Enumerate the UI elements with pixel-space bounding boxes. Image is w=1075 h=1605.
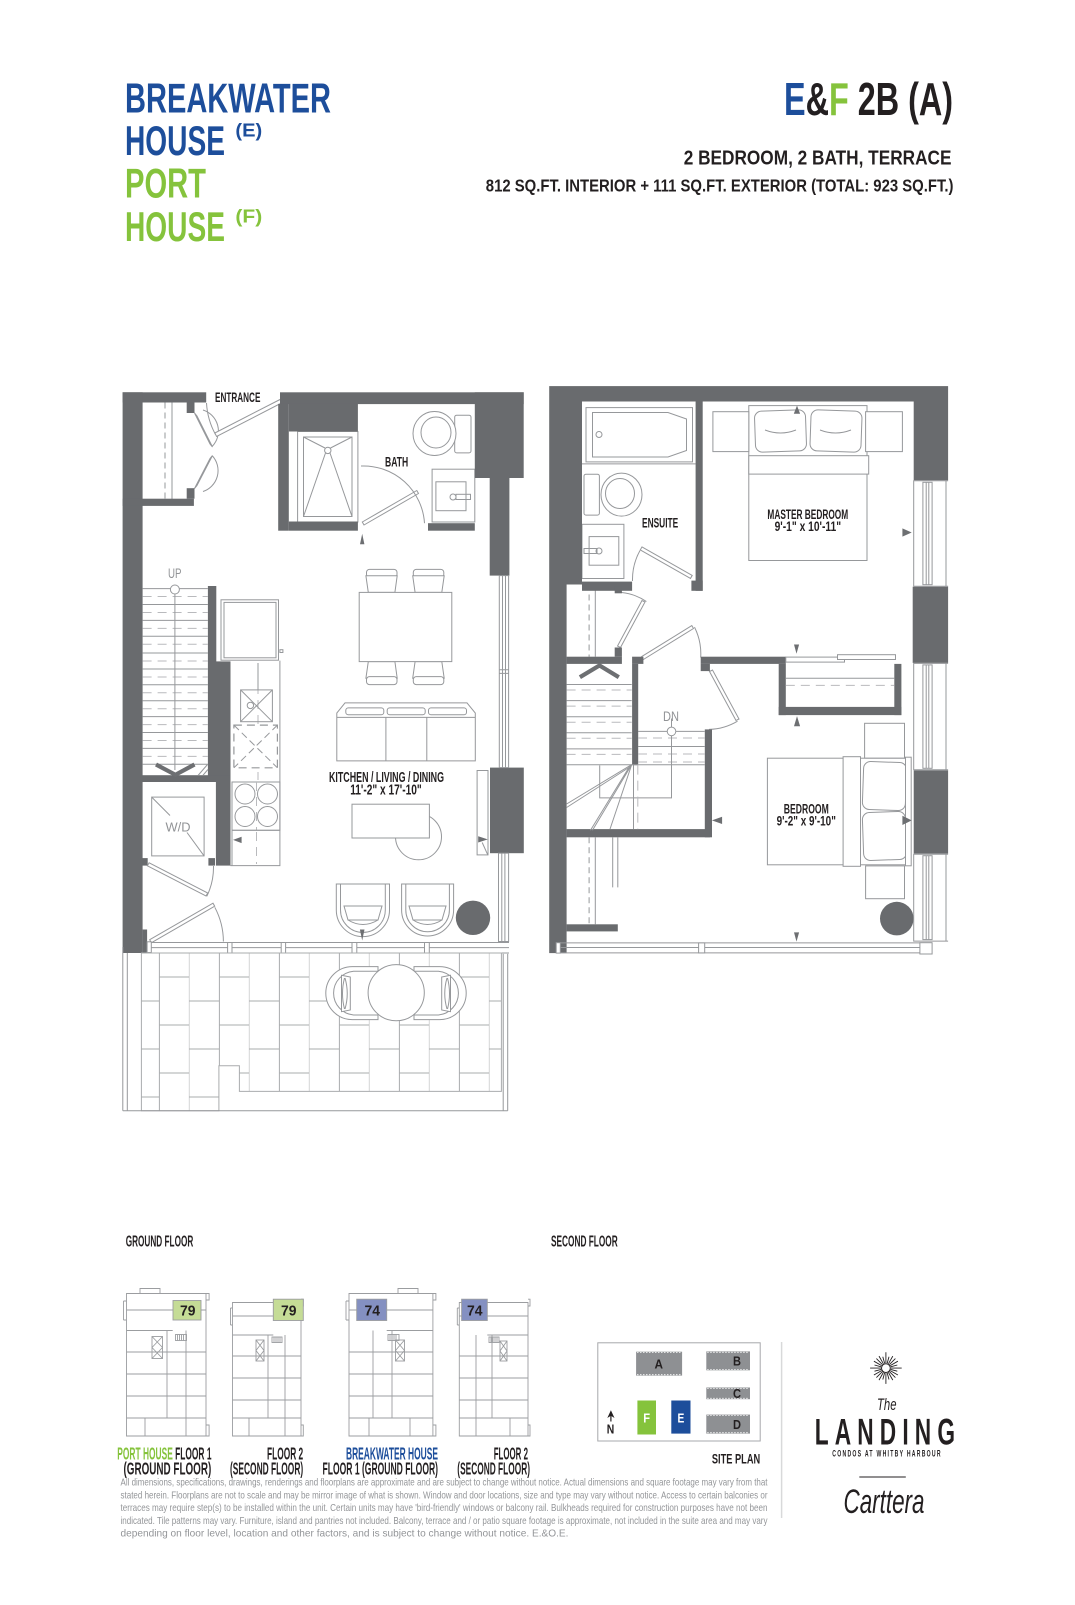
svg-text:SITE PLAN: SITE PLAN	[712, 1450, 760, 1466]
svg-text:DN: DN	[663, 709, 679, 724]
svg-text:79: 79	[180, 1304, 196, 1320]
svg-text:HOUSE: HOUSE	[125, 117, 225, 164]
svg-text:terraces may require step(s) t: terraces may require step(s) to be insta…	[121, 1502, 768, 1514]
svg-text:(E): (E)	[235, 121, 262, 141]
svg-text:indicated. Tile patterns may v: indicated. Tile patterns may vary. Furni…	[121, 1515, 769, 1527]
svg-text:Carttera: Carttera	[844, 1483, 925, 1521]
svg-text:PORT: PORT	[125, 160, 206, 207]
svg-text:depending on floor level, loca: depending on floor level, location and o…	[121, 1528, 569, 1540]
svg-text:UP: UP	[168, 566, 182, 581]
svg-text:11'-2" x 17'-10": 11'-2" x 17'-10"	[350, 782, 422, 798]
svg-text:W/D: W/D	[166, 820, 191, 835]
svg-text:812 SQ.FT. INTERIOR + 111 SQ.F: 812 SQ.FT. INTERIOR + 111 SQ.FT. EXTERIO…	[486, 176, 954, 196]
svg-text:E: E	[678, 1411, 685, 1426]
svg-text:(SECOND FLOOR): (SECOND FLOOR)	[230, 1458, 303, 1478]
svg-text:All dimensions, specifications: All dimensions, specifications, drawings…	[121, 1477, 768, 1489]
svg-text:N: N	[607, 1423, 615, 1437]
svg-text:9'-2" x 9'-10": 9'-2" x 9'-10"	[777, 813, 836, 828]
svg-text:E&F 2B (A): E&F 2B (A)	[784, 73, 953, 125]
svg-text:GROUND FLOOR: GROUND FLOOR	[126, 1234, 194, 1251]
svg-text:(F): (F)	[235, 207, 262, 227]
svg-text:LANDING: LANDING	[815, 1411, 961, 1453]
svg-text:9'-1" x 10'-11": 9'-1" x 10'-11"	[775, 519, 842, 534]
svg-text:HOUSE: HOUSE	[125, 203, 225, 250]
svg-text:FLOOR 1 (GROUND FLOOR): FLOOR 1 (GROUND FLOOR)	[323, 1458, 439, 1478]
svg-text:CONDOS AT WHITBY HARBOUR: CONDOS AT WHITBY HARBOUR	[832, 1448, 942, 1459]
svg-text:C: C	[733, 1386, 742, 1401]
svg-text:74: 74	[467, 1304, 483, 1320]
svg-text:SECOND FLOOR: SECOND FLOOR	[551, 1234, 618, 1251]
svg-text:(GROUND FLOOR): (GROUND FLOOR)	[124, 1458, 212, 1478]
svg-text:F: F	[643, 1411, 650, 1426]
svg-text:BREAKWATER: BREAKWATER	[125, 75, 331, 122]
svg-text:ENTRANCE: ENTRANCE	[215, 389, 260, 405]
svg-text:ENSUITE: ENSUITE	[642, 516, 678, 531]
svg-text:79: 79	[281, 1304, 297, 1320]
svg-text:B: B	[733, 1354, 741, 1369]
svg-text:2 BEDROOM, 2 BATH, TERRACE: 2 BEDROOM, 2 BATH, TERRACE	[684, 147, 952, 169]
svg-text:74: 74	[365, 1304, 381, 1320]
svg-text:A: A	[655, 1357, 664, 1372]
svg-text:stated herein. Floorplans are: stated herein. Floorplans are not to sca…	[121, 1489, 768, 1501]
svg-text:(SECOND FLOOR): (SECOND FLOOR)	[457, 1458, 530, 1478]
svg-text:BATH: BATH	[385, 455, 408, 470]
svg-text:D: D	[733, 1417, 741, 1432]
